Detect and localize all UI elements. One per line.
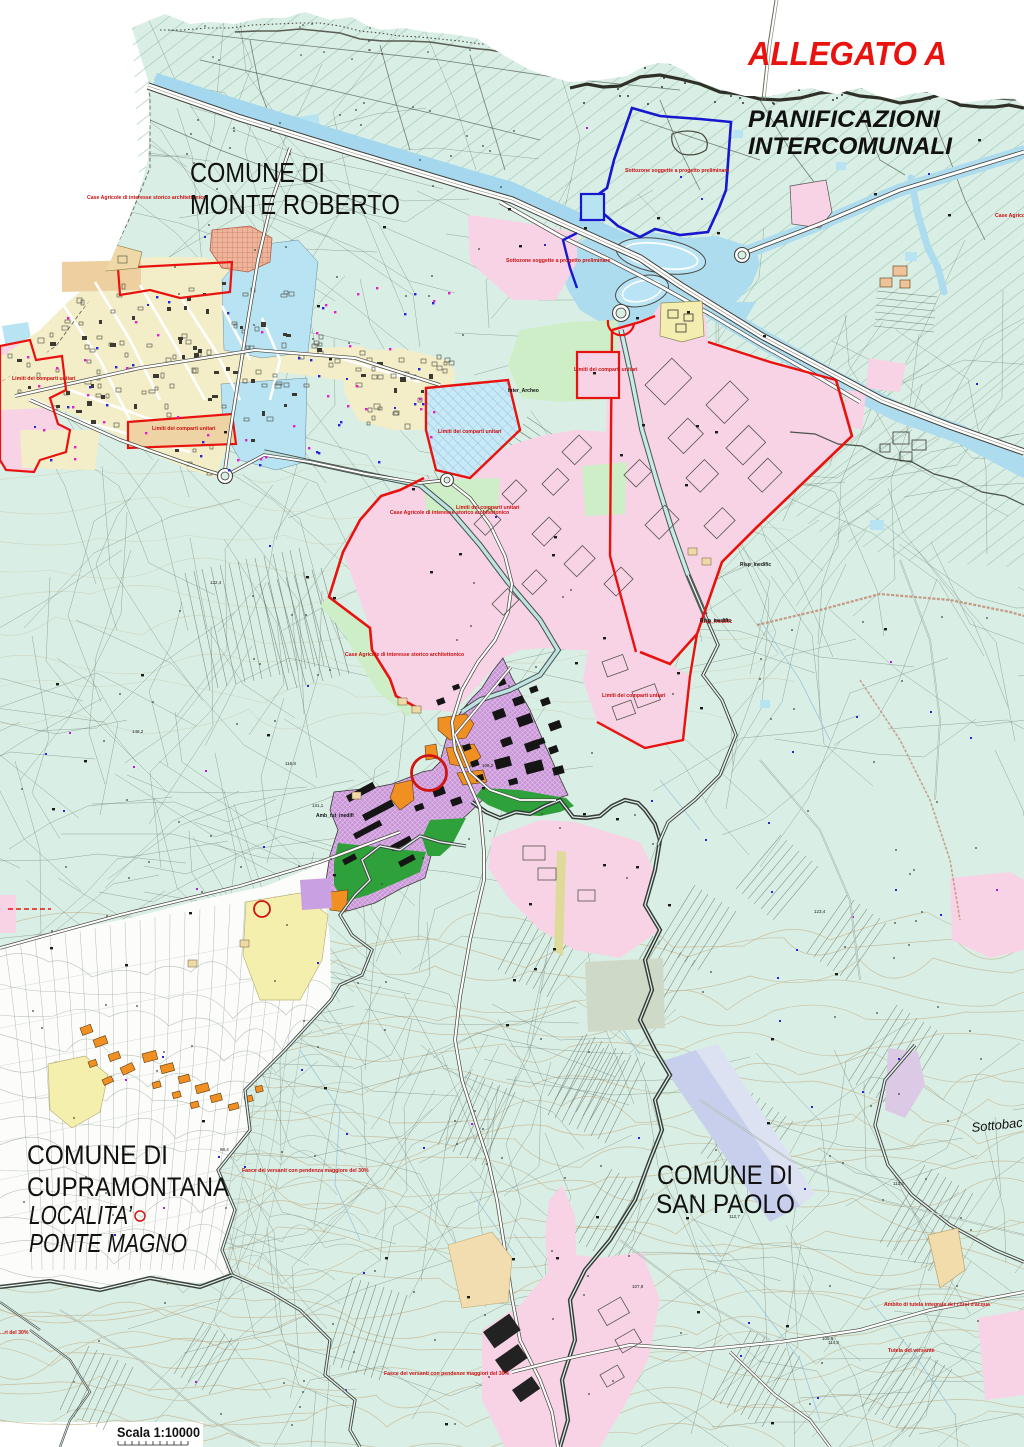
svg-text:Limiti dei comparti unitari: Limiti dei comparti unitari: [574, 367, 638, 373]
svg-text:Fasce dei versanti con pendenz: Fasce dei versanti con pendenze maggiori…: [384, 1371, 510, 1377]
svg-text:Limiti dei comparti unitari: Limiti dei comparti unitari: [152, 426, 216, 432]
svg-text:PONTE MAGNO: PONTE MAGNO: [29, 1228, 187, 1258]
svg-text:INTERCOMUNALI: INTERCOMUNALI: [748, 133, 953, 160]
svg-text:114,3: 114,3: [828, 1340, 839, 1345]
svg-text:Scala 1:10000: Scala 1:10000: [117, 1424, 200, 1440]
svg-text:98,4: 98,4: [220, 1147, 229, 1152]
svg-text:Case Agricole di interesse sto: Case Agricole di interesse storico archi…: [87, 195, 206, 201]
svg-text:MONTE ROBERTO: MONTE ROBERTO: [190, 189, 400, 220]
svg-text:148,2: 148,2: [132, 729, 144, 734]
svg-text:112,7: 112,7: [729, 1214, 740, 1219]
svg-text:Limiti dei comparti unitari: Limiti dei comparti unitari: [602, 693, 666, 699]
svg-text:Case Agricole di interesse sto: Case Agricole di interesse storico archi…: [345, 652, 464, 658]
svg-text:107,8: 107,8: [632, 1284, 644, 1289]
svg-text:122,4: 122,4: [210, 580, 222, 585]
svg-text:Sottozone soggette a progetto: Sottozone soggette a progetto preliminar…: [625, 168, 729, 174]
svg-text:Inter_Archeo: Inter_Archeo: [508, 388, 539, 394]
svg-text:Limiti dei comparti unitari: Limiti dei comparti unitari: [438, 429, 502, 435]
svg-text:Tutela del versante: Tutela del versante: [888, 1348, 935, 1354]
svg-text:PIANIFICAZIONI: PIANIFICAZIONI: [748, 106, 941, 133]
svg-text:108,2: 108,2: [482, 763, 494, 768]
svg-text:Case Agricole: Case Agricole: [995, 213, 1024, 219]
svg-text:Risp_inedific: Risp_inedific: [740, 562, 771, 568]
svg-text:COMUNE DI: COMUNE DI: [27, 1140, 168, 1170]
svg-text:113,2: 113,2: [893, 1181, 904, 1186]
svg-text:COMUNE DI: COMUNE DI: [657, 1160, 793, 1190]
svg-text:Case Agricole di interesse sto: Case Agricole di interesse storico archi…: [390, 510, 509, 516]
svg-text:Limiti dei comparti unitari: Limiti dei comparti unitari: [12, 376, 76, 382]
svg-text:Sottozone soggette a progetto: Sottozone soggette a progetto preliminar…: [506, 258, 610, 264]
svg-text:116,8: 116,8: [285, 761, 296, 766]
svg-text:Amb_tut_inedifi: Amb_tut_inedifi: [316, 813, 354, 819]
svg-text:COMUNE DI: COMUNE DI: [190, 157, 325, 188]
svg-text:Fasce dei versanti con pendenz: Fasce dei versanti con pendenza maggiore…: [242, 1168, 369, 1174]
svg-text:SAN PAOLO: SAN PAOLO: [656, 1189, 795, 1219]
svg-text:123,4: 123,4: [814, 909, 826, 914]
svg-text:...ri del 30%: ...ri del 30%: [0, 1330, 29, 1336]
svg-text:131,1: 131,1: [312, 803, 324, 808]
svg-text:ALLEGATO A: ALLEGATO A: [747, 35, 947, 72]
svg-text:Risp_inedific: Risp_inedific: [700, 618, 731, 624]
svg-text:LOCALITA’: LOCALITA’: [29, 1200, 133, 1230]
svg-text:Ambito di tutela integrale dei: Ambito di tutela integrale dei corsi d'a…: [884, 1302, 990, 1308]
svg-text:CUPRAMONTANA: CUPRAMONTANA: [27, 1172, 229, 1202]
